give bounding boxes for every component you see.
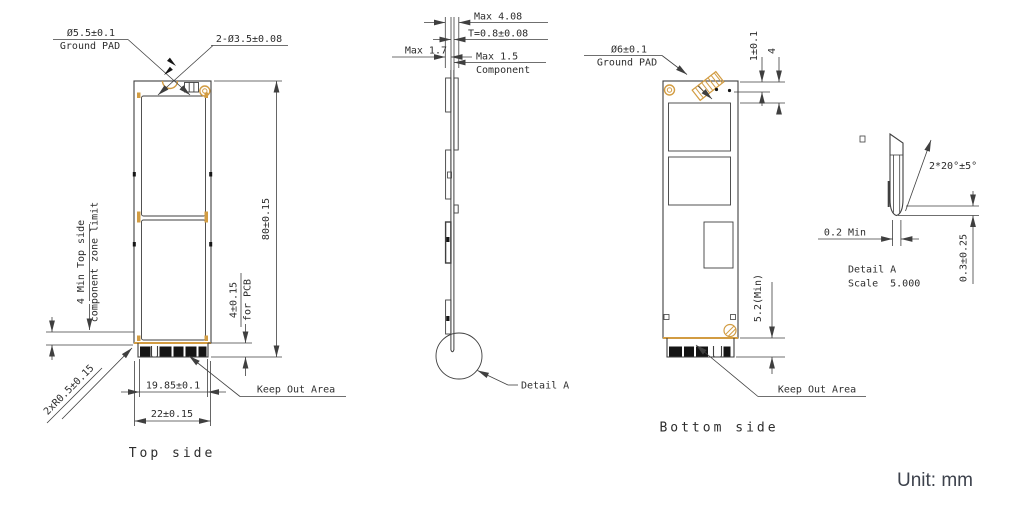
chamfer-angle-callout: 2*20°±5° bbox=[906, 140, 978, 211]
dim-board-width: 22±0.15 bbox=[135, 361, 211, 426]
bottom-side-caption: Bottom side bbox=[659, 421, 778, 436]
detail-callout-text: Detail A bbox=[521, 381, 569, 392]
dim-chamfer-height: 0.3±0.25 bbox=[898, 191, 979, 284]
left-component-text: Max 1.7 bbox=[405, 46, 447, 57]
top-pcb-outline bbox=[133, 81, 212, 357]
dim-pad-offset: 1±0.1 4 bbox=[734, 31, 785, 113]
pcb-edge-dim-text: 4±0.15 bbox=[229, 282, 240, 318]
board-width-dim-text: 22±0.15 bbox=[151, 409, 193, 420]
chamfer-height-dim-text: 0.3±0.25 bbox=[959, 234, 970, 282]
technical-drawing: Ø5.5±0.1 Ground PAD 2-Ø3.5±0.08 80±0.15 … bbox=[0, 0, 1018, 507]
gold-corner-ticks bbox=[137, 93, 208, 342]
nand-component-1 bbox=[669, 103, 731, 151]
keep-out-label-bottom: Keep Out Area bbox=[778, 385, 856, 396]
keep-out-label-top: Keep Out Area bbox=[257, 385, 335, 396]
small-component bbox=[185, 83, 199, 93]
dim-overall-thickness: Max 4.08 bbox=[424, 12, 548, 23]
mechanical-drawing-canvas: Ø5.5±0.1 Ground PAD 2-Ø3.5±0.08 80±0.15 … bbox=[0, 0, 1018, 507]
connector-notch bbox=[152, 346, 158, 357]
chamfer-angle-text: 2*20°±5° bbox=[929, 161, 977, 172]
side-extension-lines bbox=[445, 17, 459, 70]
component-zone-upper bbox=[142, 96, 206, 216]
finger-width-dim-text: 19.85±0.1 bbox=[146, 381, 200, 392]
component-zone-dim-text: 5.2(Min) bbox=[753, 274, 764, 322]
detail-a-scale: Scale 5.000 bbox=[848, 279, 920, 290]
gold-ring-pad-bottom bbox=[665, 85, 675, 95]
ground-pad-label: Ø5.5±0.1 bbox=[67, 27, 115, 39]
top-side-view: Ø5.5±0.1 Ground PAD 2-Ø3.5±0.08 80±0.15 … bbox=[42, 27, 346, 461]
pcb-edge-dim-subtext: for PCB bbox=[243, 279, 254, 321]
dim-right-component: Max 1.5 Component bbox=[454, 52, 546, 77]
component-zone-limit-callout: 4 Min Top side component zone limit bbox=[46, 202, 134, 360]
dim-left-component: Max 1.7 bbox=[392, 46, 472, 58]
detail-circle bbox=[436, 333, 482, 379]
component-zone-label-1: 4 Min Top side bbox=[76, 220, 87, 304]
edge-pad-ticks bbox=[133, 172, 212, 247]
top-side-caption: Top side bbox=[129, 446, 216, 461]
detail-a-callout: Detail A bbox=[436, 333, 569, 392]
holes-label: 2-Ø3.5±0.08 bbox=[216, 33, 282, 45]
pcb-thickness-text: T=0.8±0.08 bbox=[468, 29, 528, 40]
component-zone-lower bbox=[142, 220, 206, 340]
bottom-pcb-outline bbox=[663, 72, 738, 357]
corner-radius-callout: 2xR0.5±0.15 bbox=[42, 348, 132, 423]
side-profile-body bbox=[446, 70, 459, 352]
controller-component bbox=[704, 222, 733, 268]
connector-notch-bottom bbox=[714, 346, 722, 357]
nand-component-2 bbox=[669, 157, 731, 205]
dim-bottom-component-zone: 5.2(Min) bbox=[736, 274, 785, 374]
detail-edge-profile bbox=[889, 134, 903, 216]
corner-radius-label: 2xR0.5±0.15 bbox=[42, 363, 97, 418]
overall-thickness-text: Max 4.08 bbox=[474, 12, 522, 23]
ground-pad-sublabel-bottom: Ground PAD bbox=[597, 58, 657, 69]
pad-offset-dim-text: 1±0.1 bbox=[749, 31, 760, 61]
edge-thickness-dim-text: 0.2 Min bbox=[824, 228, 866, 239]
component-zone-label-2: component zone limit bbox=[90, 202, 101, 322]
ground-pad-label-bottom: Ø6±0.1 bbox=[611, 44, 647, 56]
right-component-text: Max 1.5 bbox=[476, 52, 518, 63]
detail-a-view: 0.2 Min 2*20°±5° 0.3±0.25 Detail A Scale… bbox=[818, 134, 979, 290]
gold-hatched-ring bbox=[724, 325, 736, 337]
detail-a-title: Detail A bbox=[848, 265, 896, 276]
holes-callout: 2-Ø3.5±0.08 bbox=[158, 33, 288, 95]
side-view: Max 4.08 T=0.8±0.08 Max 1.7 Max 1.5 Comp… bbox=[392, 12, 569, 392]
pad-height-dim-text: 4 bbox=[767, 48, 778, 54]
dim-pcb-edge-4: 4±0.15 for PCB bbox=[208, 273, 254, 376]
ground-pad-hatched bbox=[692, 72, 724, 101]
unit-label: Unit: mm bbox=[897, 470, 973, 491]
length-dim-text: 80±0.15 bbox=[261, 198, 272, 240]
ground-pad-sublabel: Ground PAD bbox=[60, 41, 120, 52]
keep-out-callout-top: Keep Out Area bbox=[189, 356, 346, 397]
right-component-subtext: Component bbox=[476, 65, 530, 76]
dim-edge-thickness: 0.2 Min bbox=[818, 220, 919, 246]
small-square-marker bbox=[860, 136, 865, 142]
dim-pcb-thickness: T=0.8±0.08 bbox=[433, 29, 548, 40]
